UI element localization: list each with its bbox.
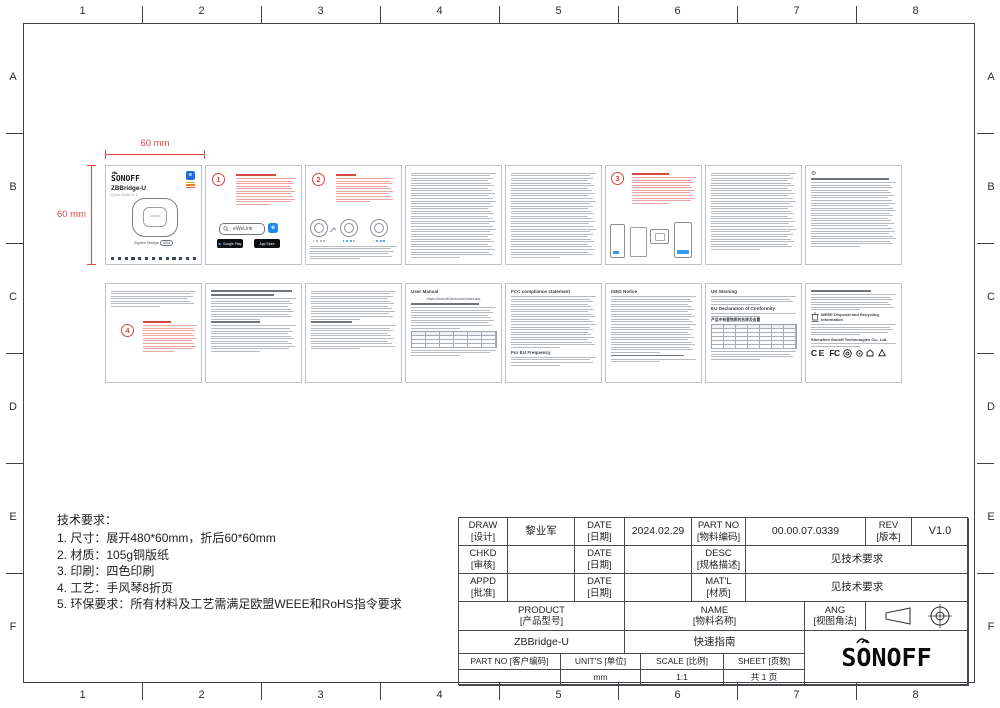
- ang-label-cell: ANG[视图角法]: [805, 602, 866, 631]
- table-notes: [711, 351, 796, 360]
- title-block: DRAW[设计] 黎业军 DATE[日期] 2024.02.29 PART NO…: [458, 517, 968, 685]
- chkd-value-cell: [508, 546, 575, 574]
- panel-fcc-statement: FCC compliance statement For EU Frequenc…: [505, 283, 602, 383]
- partno-label-cell: PART NO[物料编码]: [692, 518, 746, 546]
- grid-row-label: F: [5, 621, 21, 633]
- grid-column-label: 4: [432, 5, 448, 17]
- third-angle-projection-icon: [872, 604, 962, 628]
- grid-row-label: A: [5, 71, 21, 83]
- name-label-cell: NAME[物料名称]: [625, 602, 805, 631]
- partno-value-cell: 00.00.07.0339: [746, 518, 866, 546]
- width-dimension-label: 60 mm: [105, 138, 205, 149]
- body-text: [811, 324, 896, 335]
- hazard-table-title: 产品中有害物质的名称及含量: [711, 318, 796, 323]
- date-label-cell: DATE[日期]: [575, 518, 625, 546]
- date-value-cell: [625, 574, 692, 602]
- weee-bin-icon: [811, 312, 819, 322]
- ce-mark: CE: [811, 348, 826, 358]
- grid-row-label: A: [983, 71, 999, 83]
- specifications-table: [411, 331, 497, 348]
- product-name: Zigbee Bridge: [134, 240, 159, 245]
- body-text: [711, 313, 796, 317]
- tech-item: 1. 尺寸：展开480*60mm，折后60*60mm: [57, 530, 402, 546]
- grid-row-label: C: [983, 291, 999, 303]
- multilingual-instructions: [632, 172, 696, 205]
- tech-item: 3. 印刷：四色印刷: [57, 563, 402, 579]
- ewelink-app-icon: e: [268, 223, 278, 233]
- google-play-label: Google Play: [223, 242, 241, 246]
- panel-ised-notice: ISED Notice: [605, 283, 702, 383]
- panel-step1-download-app: 1 | eWeLink e ▶ Google Play App Store: [205, 165, 302, 265]
- app-search-bar: | eWeLink: [219, 223, 265, 235]
- device-power-illustration: [310, 219, 337, 238]
- certification-circle-icon: [843, 349, 852, 358]
- grid-row-label: E: [5, 511, 21, 523]
- body-text: [511, 173, 596, 258]
- grid-column-label: 7: [789, 5, 805, 17]
- grid-column-label: 3: [313, 5, 329, 17]
- draw-value-cell: 黎业军: [508, 518, 575, 546]
- user-manual-title: User Manual: [411, 289, 496, 294]
- panel-weee-certifications: WEEE Disposal and Recycling Information …: [805, 283, 902, 383]
- grid-column-label: 7: [789, 689, 805, 701]
- height-dimension-label: 60 mm: [44, 209, 86, 220]
- scale-value-cell: 1:1: [641, 670, 724, 686]
- body-text: [511, 296, 596, 348]
- multilingual-instructions: [236, 173, 296, 206]
- grid-column-label: 3: [313, 689, 329, 701]
- weee-title: WEEE Disposal and Recycling Information: [821, 312, 896, 322]
- phone-illustration: [610, 224, 625, 258]
- panel-step2-power-on: 2: [305, 165, 402, 265]
- grid-row-label: D: [5, 401, 21, 413]
- product-line-label: Zigbee Bridge Ultra: [106, 240, 201, 245]
- panel-warning-text: [305, 283, 402, 383]
- width-dimension-line: [105, 154, 205, 155]
- step-number-badge: 1: [212, 173, 225, 186]
- units-label-cell: UNIT'S [单位]: [561, 654, 641, 670]
- tech-item: 4. 工艺：手风琴8折页: [57, 580, 402, 596]
- ised-title: ISED Notice: [611, 289, 696, 294]
- recycle-triangle-icon: [878, 349, 886, 357]
- grid-column-label: 8: [908, 5, 924, 17]
- body-text: [311, 291, 396, 320]
- panel-instructions-text: [705, 165, 802, 265]
- device-face-label: SONOFF: [133, 215, 177, 218]
- body-text: [811, 182, 896, 247]
- name-value-cell: 快速指南: [625, 631, 805, 654]
- grid-row-label: F: [983, 621, 999, 633]
- panel-warning-text: [205, 283, 302, 383]
- grid-column-label: 4: [432, 689, 448, 701]
- grid-row-label: E: [983, 511, 999, 523]
- sonoff-logo: SONOFF: [841, 643, 931, 672]
- app-store-badge: App Store: [254, 239, 280, 248]
- hazardous-substances-table: [711, 324, 797, 349]
- uk-warning-title: UK Warning: [711, 289, 796, 294]
- dim-tick: [87, 264, 96, 265]
- date-value-cell: [625, 546, 692, 574]
- certification-marks: CE FC: [811, 348, 896, 358]
- works-with-badge-icon: [186, 182, 195, 188]
- panel-specifications-text: ⚙: [805, 165, 902, 265]
- panel-user-manual: User Manual https://sonoff.tech/usermanu…: [405, 283, 502, 383]
- add-device-button: [677, 250, 689, 254]
- step-number-badge: 3: [611, 172, 624, 185]
- height-dimension-line: [91, 165, 92, 265]
- grid-row-label: B: [983, 181, 999, 193]
- grid-column-label: 5: [551, 689, 567, 701]
- date-value-cell: 2024.02.29: [625, 518, 692, 546]
- sheet-value-cell: 共 1 页: [724, 670, 805, 686]
- desc-label-cell: DESC[规格描述]: [692, 546, 746, 574]
- dim-tick: [105, 150, 106, 159]
- manual-url: https://sonoff.tech/usermanuals: [411, 296, 496, 301]
- search-icon: [223, 226, 229, 232]
- brand-logo: SONOFF: [111, 174, 196, 183]
- panel-instructions-text: [505, 165, 602, 265]
- table-notes: [411, 350, 496, 356]
- grid-row-label: D: [983, 401, 999, 413]
- chkd-label-cell: CHKD[审核]: [459, 546, 508, 574]
- body-text: [411, 307, 496, 328]
- scale-label-cell: SCALE [比例]: [641, 654, 724, 670]
- desc-value-cell: 见技术要求: [746, 546, 969, 574]
- device-illustration: SONOFF: [132, 198, 178, 237]
- sheet-label-cell: SHEET [页数]: [724, 654, 805, 670]
- body-text: [611, 359, 696, 363]
- body-text: [711, 296, 796, 305]
- technical-requirements: 技术要求： 1. 尺寸：展开480*60mm，折后60*60mm 2. 材质：1…: [57, 512, 402, 612]
- google-play-badge: ▶ Google Play: [217, 239, 243, 248]
- customer-partno-label-cell: PART NO [客户编码]: [459, 654, 561, 670]
- grid-column-label: 1: [75, 5, 91, 17]
- step-number-badge: 4: [121, 324, 134, 337]
- eu-doc-title: EU Declaration of Conformity: [711, 306, 796, 311]
- panel-instructions-text: [405, 165, 502, 265]
- product-label-cell: PRODUCT[产品型号]: [459, 602, 625, 631]
- step-number-badge: 2: [312, 173, 325, 186]
- house-recycle-icon: [866, 349, 874, 357]
- multilingual-instructions: [143, 320, 197, 353]
- device-led-illustration: [340, 219, 358, 237]
- panel-uk-warning-hazard-table: UK Warning EU Declaration of Conformity …: [705, 283, 802, 383]
- dim-tick: [204, 150, 205, 159]
- app-store-label: App Store: [259, 242, 274, 246]
- grid-column-label: 1: [75, 689, 91, 701]
- tech-item: 2. 材质：105g铜版纸: [57, 547, 402, 563]
- color-registration-marks: [111, 257, 196, 260]
- dim-tick: [87, 165, 96, 166]
- phone-app-illustration: [674, 222, 692, 258]
- tech-item: 5. 环保要求：所有材料及工艺需满足欧盟WEEE和RoHS指令要求: [57, 596, 402, 612]
- body-text: [511, 357, 596, 366]
- body-text: [311, 325, 396, 349]
- device-led-illustration: [370, 219, 388, 237]
- fcc-title: FCC compliance statement: [511, 289, 596, 294]
- projection-symbol-cell: [866, 602, 969, 631]
- grid-row-label: B: [5, 181, 21, 193]
- sonoff-logo-cell: SONOFF: [805, 631, 969, 686]
- appd-value-cell: [508, 574, 575, 602]
- date-label-cell: DATE[日期]: [575, 546, 625, 574]
- model-name: ZBBridge-U: [111, 185, 196, 192]
- rev-value-cell: V1.0: [912, 518, 969, 546]
- matl-value-cell: 见技术要求: [746, 574, 969, 602]
- address-text: [811, 343, 896, 347]
- rev-label-cell: REV[版本]: [866, 518, 912, 546]
- appd-label-cell: APPD[批准]: [459, 574, 508, 602]
- grid-column-label: 2: [194, 5, 210, 17]
- edition-label: Quick Guide V1.1: [111, 193, 196, 197]
- body-text: [811, 294, 896, 310]
- body-text: [611, 296, 696, 353]
- multilingual-instructions: [336, 173, 394, 204]
- panel-step4-notes: 4: [105, 283, 202, 383]
- panel-step3-pairing: 3: [605, 165, 702, 265]
- power-plug-icon: [329, 225, 337, 233]
- grid-column-label: 2: [194, 689, 210, 701]
- customer-partno-value-cell: [459, 670, 561, 686]
- grid-row-label: C: [5, 291, 21, 303]
- fcc-mark: FC: [829, 348, 839, 358]
- ewelink-app-icon: e: [186, 171, 195, 180]
- grid-column-label: 5: [551, 5, 567, 17]
- play-icon: ▶: [219, 242, 222, 246]
- caption-text: [310, 244, 397, 261]
- body-text: [211, 325, 296, 351]
- bridge-device-illustration: [650, 229, 669, 244]
- body-text: [211, 298, 296, 319]
- sonoff-wave-icon: [111, 169, 118, 175]
- draw-label-cell: DRAW[设计]: [459, 518, 508, 546]
- grid-column-label: 6: [670, 5, 686, 17]
- eu-frequency-title: For EU Frequency: [511, 350, 596, 355]
- product-value-cell: ZBBridge-U: [459, 631, 625, 654]
- tech-title: 技术要求：: [57, 512, 402, 528]
- led-dots: [342, 238, 356, 243]
- variant-badge: Ultra: [160, 240, 173, 246]
- body-text: [111, 291, 196, 307]
- grid-column-label: 8: [908, 689, 924, 701]
- units-value-cell: mm: [561, 670, 641, 686]
- panel-cover: SONOFF ZBBridge-U Quick Guide V1.1 e SON…: [105, 165, 202, 265]
- certification-dot-icon: [856, 350, 863, 357]
- gear-icon: ⚙: [811, 171, 896, 177]
- search-text: eWeLink: [233, 226, 252, 232]
- sonoff-wave-icon: [855, 634, 873, 644]
- body-text: [411, 173, 496, 258]
- body-text: [711, 173, 796, 250]
- date-label-cell: DATE[日期]: [575, 574, 625, 602]
- company-name: Shenzhen Sonoff Technologies Co., Ltd.: [811, 337, 896, 342]
- grid-column-label: 6: [670, 689, 686, 701]
- led-dots: [372, 238, 386, 243]
- matl-label-cell: MAT'L[材质]: [692, 574, 746, 602]
- card-illustration: [630, 227, 647, 257]
- led-dots: [312, 238, 326, 243]
